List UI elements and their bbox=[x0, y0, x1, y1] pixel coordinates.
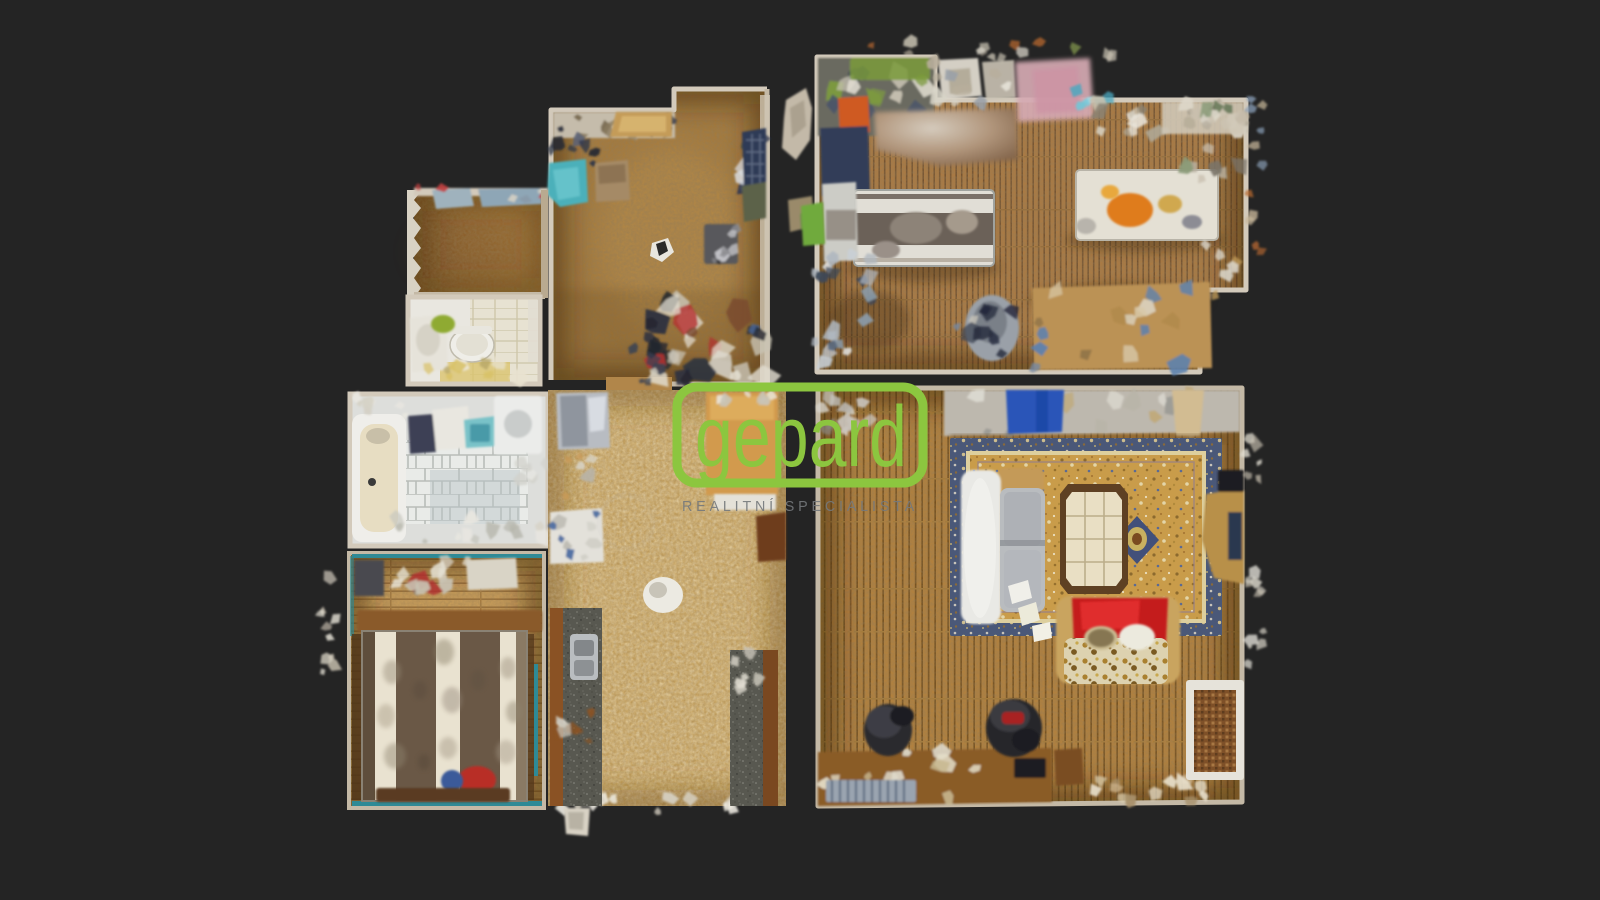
svg-text:gepard: gepard bbox=[695, 389, 907, 485]
svg-text:REALITNÍ SPECIALISTA: REALITNÍ SPECIALISTA bbox=[682, 498, 918, 515]
